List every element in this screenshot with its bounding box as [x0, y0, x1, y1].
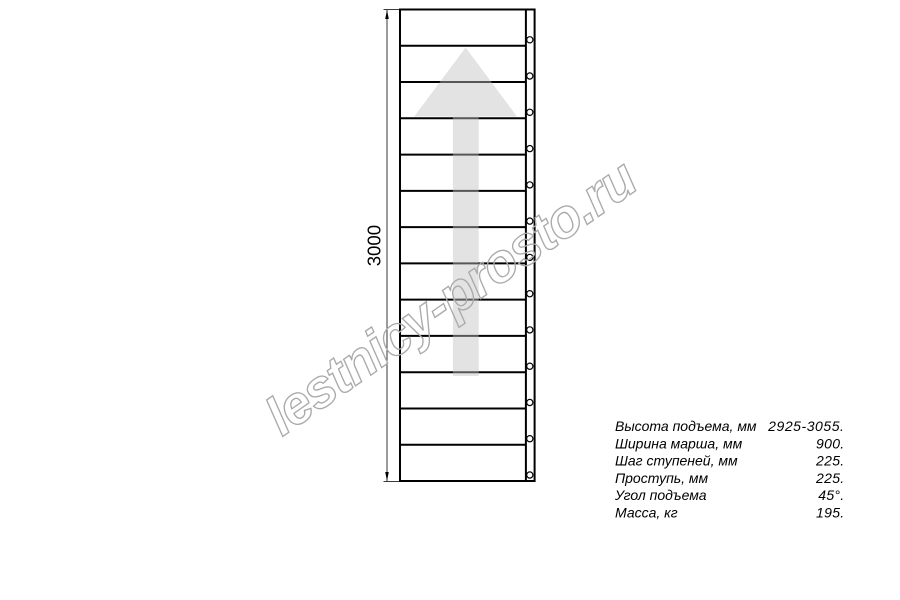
svg-text:Ширина марша, мм: Ширина марша, мм: [615, 435, 743, 451]
svg-text:45°.: 45°.: [818, 487, 844, 503]
svg-text:3000: 3000: [364, 225, 385, 266]
svg-text:Угол подъема: Угол подъема: [614, 487, 707, 503]
svg-text:195.: 195.: [816, 505, 844, 521]
svg-text:2925-3055.: 2925-3055.: [767, 418, 844, 434]
svg-text:Проступь, мм: Проступь, мм: [615, 470, 709, 486]
svg-text:Шаг ступеней, мм: Шаг ступеней, мм: [615, 453, 738, 469]
svg-text:900.: 900.: [816, 435, 844, 451]
svg-text:225.: 225.: [815, 470, 844, 486]
svg-text:Масса, кг: Масса, кг: [615, 505, 678, 521]
svg-text:Высота подъема, мм: Высота подъема, мм: [615, 418, 757, 434]
svg-text:225.: 225.: [815, 453, 844, 469]
